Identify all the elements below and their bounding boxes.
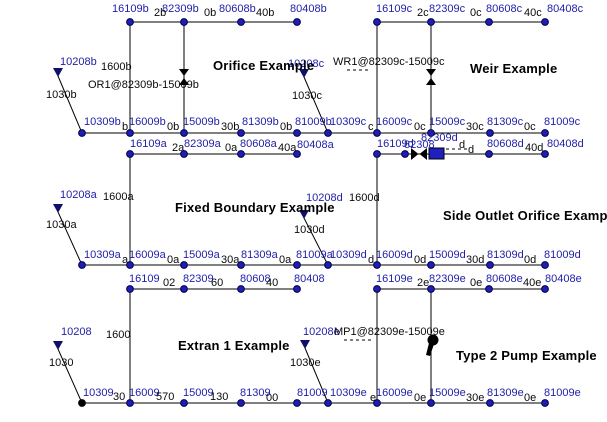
- node-label: 15009e: [429, 388, 466, 399]
- conduit-label: 0c: [470, 8, 482, 19]
- node-label: 80408e: [545, 274, 582, 285]
- conduit-label: b: [122, 122, 128, 133]
- node-label: 16109c: [376, 4, 412, 15]
- conduit-label: 0a: [279, 255, 291, 266]
- conduit-label: 30d: [466, 255, 484, 266]
- conduit-label: 40c: [524, 8, 542, 19]
- node-label: 82309b: [162, 4, 199, 15]
- junction-node[interactable]: [294, 262, 301, 269]
- conduit-label: 0a: [225, 143, 237, 154]
- conduit-label: 2e: [417, 278, 429, 289]
- node-label: 15009: [183, 388, 214, 399]
- junction-node[interactable]: [79, 262, 86, 269]
- node-label: 81009a: [296, 250, 333, 261]
- node-label: 15009b: [183, 117, 220, 128]
- boundary-triangle-icon[interactable]: [53, 204, 63, 213]
- annotation-label: WR1@82309c-15009c: [333, 57, 444, 68]
- conduit-label: 0e: [524, 393, 536, 404]
- conduit-label: e: [370, 393, 376, 404]
- boundary-triangle-icon[interactable]: [300, 340, 310, 349]
- junction-node[interactable]: [294, 400, 301, 407]
- node-label: 81009e: [544, 388, 581, 399]
- junction-node[interactable]: [127, 19, 134, 26]
- junction-node[interactable]: [428, 262, 435, 269]
- node-label: 80608c: [486, 4, 522, 15]
- junction-node[interactable]: [238, 19, 245, 26]
- junction-node[interactable]: [374, 286, 381, 293]
- example-title: Weir Example: [470, 62, 557, 75]
- conduit-label: 40a: [278, 143, 296, 154]
- node-label: 16009a: [129, 250, 166, 261]
- conduit-label: 0a: [167, 255, 179, 266]
- node-label: 81309b: [242, 117, 279, 128]
- annotation-label: 1030b: [46, 90, 77, 101]
- orifice-icon[interactable]: [179, 69, 189, 76]
- conduit-label: 130: [210, 392, 228, 403]
- conduit-label: 40d: [525, 143, 543, 154]
- conduit-label: 0b: [167, 122, 179, 133]
- node-label: 10309c: [330, 117, 366, 128]
- node-label: 80408a: [297, 140, 334, 151]
- junction-node[interactable]: [542, 19, 549, 26]
- node-label: 80608e: [486, 274, 523, 285]
- junction-node[interactable]: [374, 130, 381, 137]
- annotation-label: 1600a: [103, 192, 134, 203]
- conduit-label: 0d: [414, 255, 426, 266]
- node-label: 10309b: [84, 117, 121, 128]
- conduit-label: d: [368, 255, 374, 266]
- conduit-label: 40e: [523, 278, 541, 289]
- annotation-label: 1600: [106, 330, 130, 341]
- conduit-label: 0c: [414, 122, 426, 133]
- weir-icon[interactable]: [426, 78, 436, 85]
- junction-node[interactable]: [181, 19, 188, 26]
- junction-node[interactable]: [486, 151, 493, 158]
- node-label: 10208b: [60, 57, 97, 68]
- example-title: Side Outlet Orifice Example: [443, 209, 607, 222]
- node-label: 10309e: [330, 388, 367, 399]
- node-label: 16009d: [376, 250, 413, 261]
- conduit-label: 30b: [221, 122, 239, 133]
- node-label: 80408: [294, 274, 325, 285]
- node-label: 15009c: [429, 117, 465, 128]
- conduit-label: 40b: [256, 8, 274, 19]
- node-label: 10309: [83, 388, 114, 399]
- node-label: 10309d: [330, 250, 367, 261]
- node-label: 80608d: [487, 139, 524, 150]
- junction-node[interactable]: [374, 262, 381, 269]
- junction-node[interactable]: [486, 286, 493, 293]
- annotation-label: 1600b: [101, 62, 132, 73]
- conduit-label: 30a: [221, 255, 239, 266]
- node-label: 82309c: [429, 4, 465, 15]
- annotation-label: 1030: [49, 358, 73, 369]
- junction-node[interactable]: [181, 286, 188, 293]
- annotation-label: 1030c: [292, 91, 322, 102]
- junction-node[interactable]: [127, 151, 134, 158]
- node-label: 10208a: [60, 190, 97, 201]
- example-title: Extran 1 Example: [178, 339, 290, 352]
- node-label: 16109b: [112, 4, 149, 15]
- junction-node[interactable]: [374, 19, 381, 26]
- pump-icon[interactable]: [426, 343, 434, 356]
- annotation-label: 1600d: [349, 193, 380, 204]
- junction-node[interactable]: [542, 400, 549, 407]
- junction-node[interactable]: [487, 400, 494, 407]
- junction-node[interactable]: [486, 19, 493, 26]
- node-label: 16109e: [376, 274, 413, 285]
- conduit-label: 30c: [466, 122, 484, 133]
- node-label: 80408c: [547, 4, 583, 15]
- conduit-label: 40: [266, 278, 278, 289]
- junction-node[interactable]: [238, 151, 245, 158]
- node-label: 80608a: [240, 139, 277, 150]
- annotation-label: MP1@82309e-15009e: [334, 327, 445, 338]
- node-label: 16109a: [130, 139, 167, 150]
- boundary-triangle-icon[interactable]: [53, 68, 63, 77]
- annotation-label: 1030a: [46, 220, 77, 231]
- node-label: 82309e: [429, 274, 466, 285]
- annotation-label: OR1@82309b-15009b: [88, 80, 199, 91]
- boundary-triangle-icon[interactable]: [53, 341, 63, 350]
- conduit-label: 2a: [172, 143, 184, 154]
- junction-node[interactable]: [325, 130, 332, 137]
- conduit-label: 2c: [417, 8, 429, 19]
- conduit-label: 30: [113, 392, 125, 403]
- node-label: 80408b: [290, 4, 327, 15]
- node-label: 81009: [297, 388, 328, 399]
- junction-node[interactable]: [428, 400, 435, 407]
- junction-node[interactable]: [294, 130, 301, 137]
- node-label: 81309e: [487, 388, 524, 399]
- weir-icon[interactable]: [426, 69, 436, 76]
- link[interactable]: [58, 76, 82, 133]
- conduit-label: 0b: [204, 8, 216, 19]
- node-label: 82309d: [421, 133, 458, 144]
- node-label: 16009b: [129, 117, 166, 128]
- junction-node[interactable]: [374, 151, 381, 158]
- example-title: Orifice Example: [213, 59, 314, 72]
- node-label: 80408d: [547, 139, 584, 150]
- node-label: 80608b: [219, 4, 256, 15]
- junction-node[interactable]: [294, 286, 301, 293]
- annotation-label: 1030d: [294, 225, 325, 236]
- node-label: 16109: [129, 274, 160, 285]
- junction-node[interactable]: [542, 130, 549, 137]
- node-label: 16009e: [376, 388, 413, 399]
- junction-node[interactable]: [127, 400, 134, 407]
- node-label: 81009b: [295, 117, 332, 128]
- node-label: 15009d: [429, 250, 466, 261]
- node-label: 16009: [129, 388, 160, 399]
- node-label: 81009d: [544, 250, 581, 261]
- conduit-label: a: [122, 255, 128, 266]
- conduit-label: 00: [266, 393, 278, 404]
- junction-node[interactable]: [542, 262, 549, 269]
- conduit-label: d: [468, 145, 474, 156]
- conduit-label: 02: [163, 278, 175, 289]
- node-label: 81309a: [241, 250, 278, 261]
- conduit-label: 0e: [414, 393, 426, 404]
- conduit-label: 0c: [524, 122, 536, 133]
- junction-node[interactable]: [542, 286, 549, 293]
- outfall-node[interactable]: [79, 400, 86, 407]
- conduit-label: 30e: [466, 393, 484, 404]
- junction-node[interactable]: [428, 19, 435, 26]
- annotation-label: 1030e: [290, 358, 321, 369]
- node-label: 10208: [61, 327, 92, 338]
- junction-node[interactable]: [238, 286, 245, 293]
- junction-node[interactable]: [402, 151, 409, 158]
- conduit-label: 0e: [470, 278, 482, 289]
- conduit-label: 0b: [280, 122, 292, 133]
- conduit-label: 2b: [154, 8, 166, 19]
- junction-node[interactable]: [181, 400, 188, 407]
- conduit-label: 0d: [524, 255, 536, 266]
- conduit-label: d: [459, 140, 465, 151]
- junction-node[interactable]: [487, 262, 494, 269]
- junction-node[interactable]: [325, 400, 332, 407]
- junction-node[interactable]: [238, 400, 245, 407]
- junction-node[interactable]: [127, 286, 134, 293]
- junction-node[interactable]: [325, 262, 332, 269]
- junction-node[interactable]: [487, 130, 494, 137]
- junction-node[interactable]: [294, 19, 301, 26]
- node-label: 81009c: [544, 117, 580, 128]
- node-label: 81309c: [487, 117, 523, 128]
- junction-node[interactable]: [79, 130, 86, 137]
- node-label: 81309d: [487, 250, 524, 261]
- network-diagram-canvas: 16109b82309b80608b80408b16109c82309c8060…: [0, 0, 607, 422]
- node-label: 15009a: [183, 250, 220, 261]
- junction-node[interactable]: [181, 130, 188, 137]
- node-label: 16009c: [376, 117, 412, 128]
- conduit-label: 570: [156, 392, 174, 403]
- node-label: 10309a: [84, 250, 121, 261]
- example-title: Fixed Boundary Example: [175, 201, 335, 214]
- conduit-label: 60: [211, 278, 223, 289]
- node-label: 82309: [183, 274, 214, 285]
- node-label: 82309a: [184, 139, 221, 150]
- example-title: Type 2 Pump Example: [456, 349, 597, 362]
- junction-node[interactable]: [181, 262, 188, 269]
- conduit-label: c: [368, 122, 374, 133]
